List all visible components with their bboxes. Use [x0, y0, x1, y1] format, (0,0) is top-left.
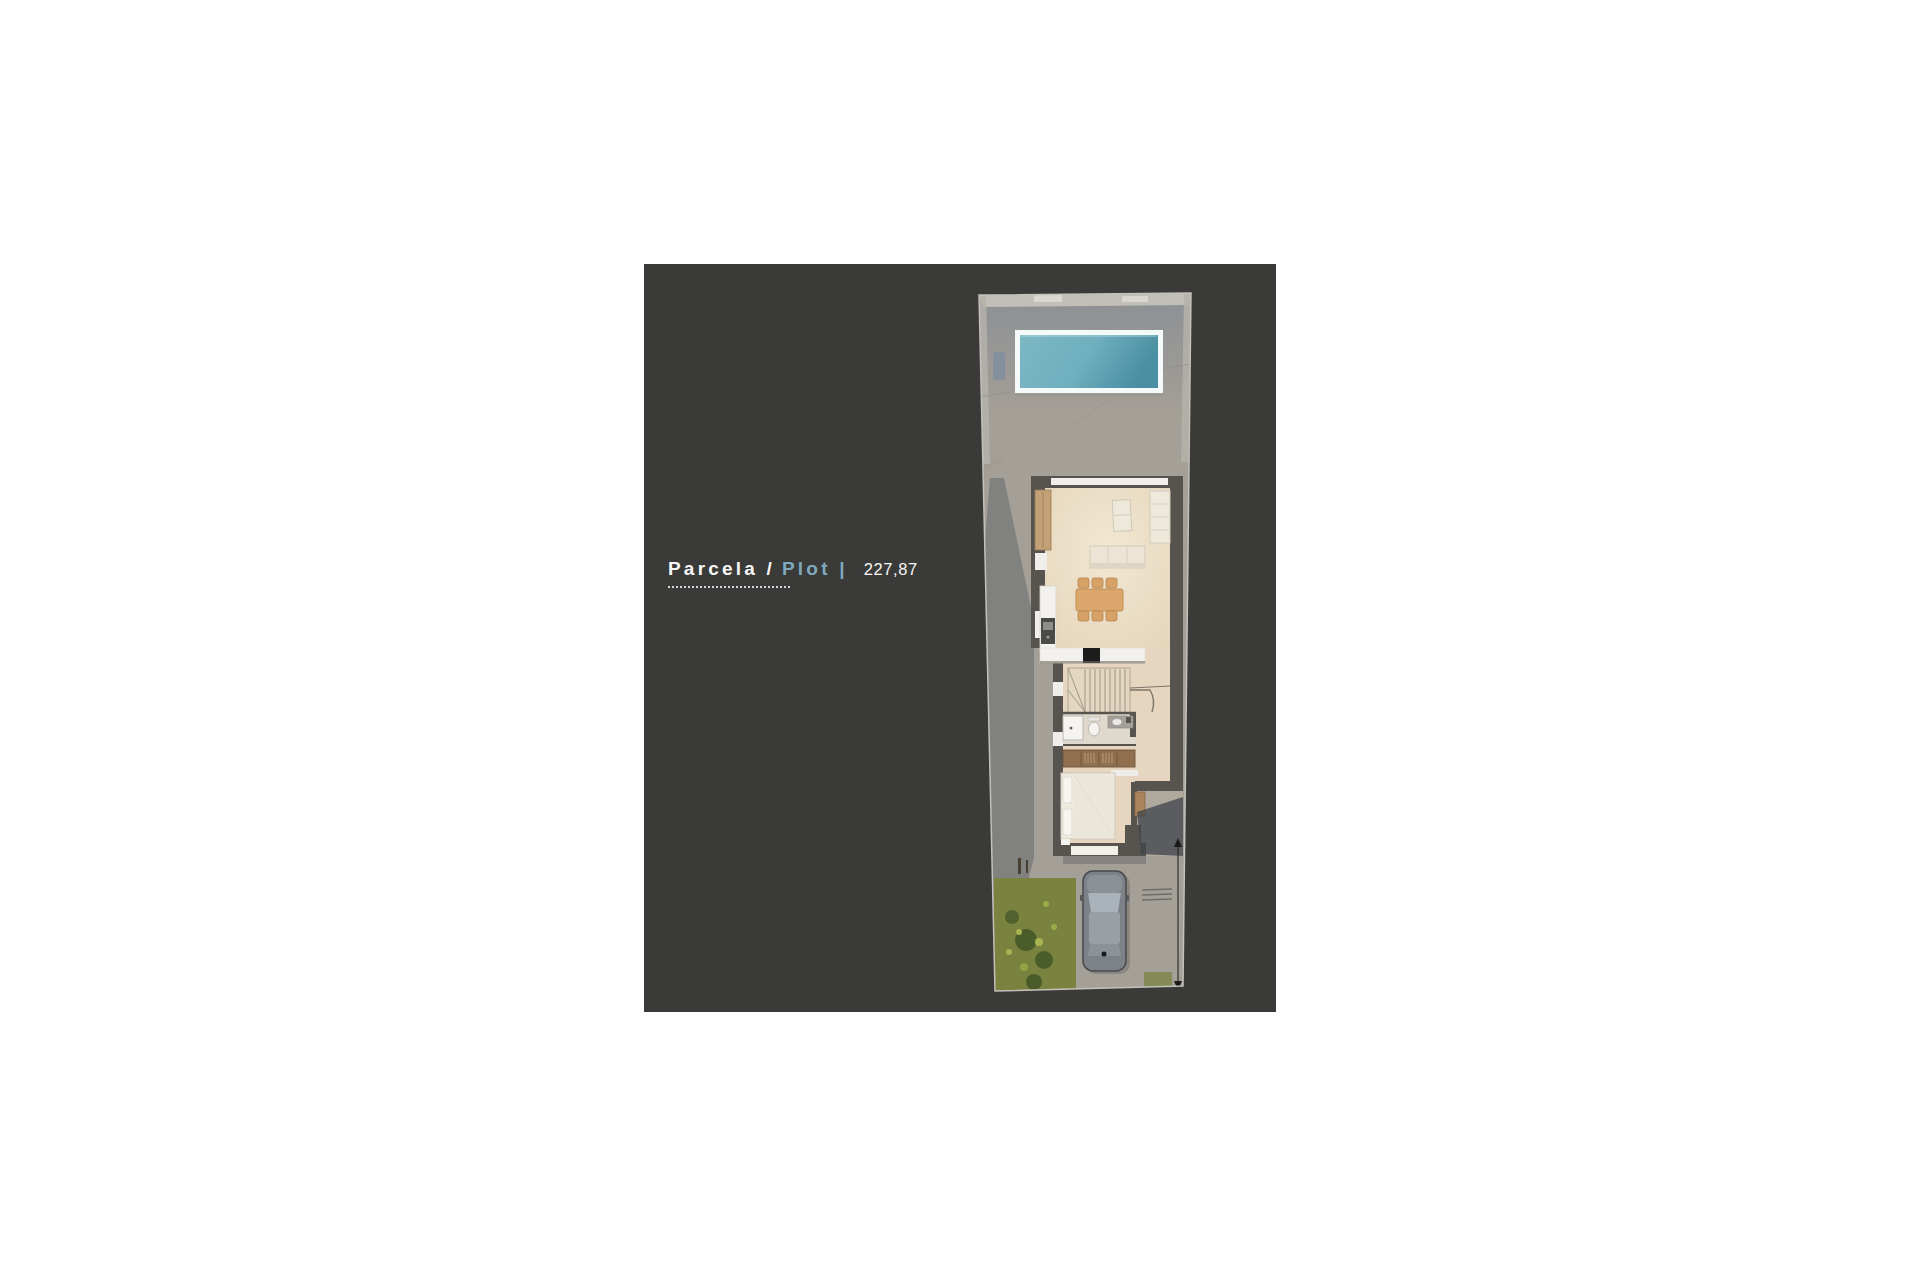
car-windshield [1088, 893, 1121, 912]
bedside-table [1061, 839, 1070, 845]
pool-water [1020, 335, 1158, 388]
shower [1063, 716, 1083, 740]
bed [1061, 773, 1115, 839]
label-plot: Plot | [782, 558, 848, 580]
swimming-pool [1015, 330, 1163, 395]
plot-area-value: 227,87 [864, 560, 918, 579]
car-mirror [1080, 895, 1084, 901]
fence-post [1026, 860, 1028, 873]
sofa [1090, 546, 1145, 568]
ground-marking [993, 352, 1005, 380]
toilet [1089, 722, 1100, 736]
site-plan-image [974, 292, 1196, 998]
car-hood [1087, 875, 1122, 893]
l-sofa [1150, 491, 1170, 543]
fence-post [1018, 858, 1021, 874]
wall-bedroom-right-cap [1135, 781, 1183, 791]
wardrobe [1063, 750, 1135, 767]
window-left-2 [1053, 732, 1063, 746]
pillow [1063, 777, 1072, 803]
house-floorplan [1031, 476, 1183, 856]
sliding-glass-door [1051, 478, 1168, 485]
grass-patch [1144, 972, 1172, 988]
car-mirror [1125, 895, 1129, 901]
plot-area-label: Parcela / Plot | 227,87 [668, 558, 918, 580]
dining-table-set [1076, 578, 1123, 621]
bathroom [1063, 713, 1136, 745]
pillow [1063, 809, 1072, 835]
armchair [1112, 500, 1132, 532]
window-upper-1 [1035, 553, 1047, 570]
window-left-1 [1053, 682, 1063, 696]
terrace-strip [1071, 846, 1118, 855]
car [1080, 871, 1130, 974]
plot-ground [974, 292, 1196, 998]
dotted-underline [668, 586, 790, 588]
wall-right [1170, 476, 1183, 781]
car-roof [1089, 912, 1120, 944]
sink [1112, 719, 1122, 726]
cooktop [1083, 648, 1100, 663]
label-parcela: Parcela / [668, 558, 775, 580]
kitchen-appliance [1041, 618, 1055, 644]
presentation-panel: Parcela / Plot | 227,87 [644, 264, 1276, 1012]
